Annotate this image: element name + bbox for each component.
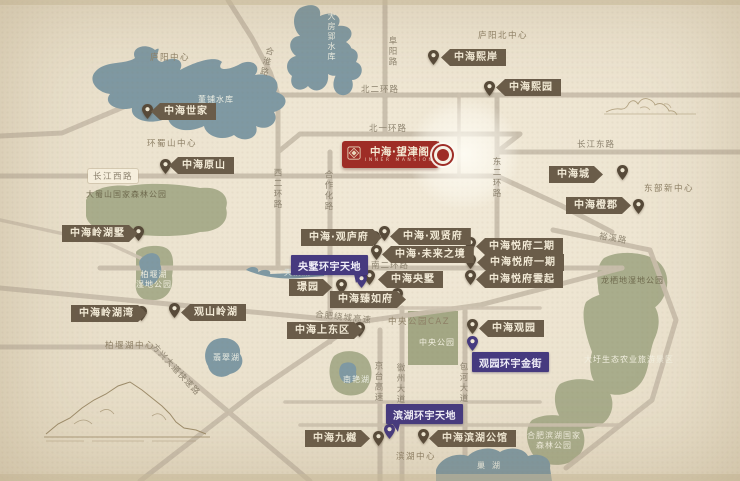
project-pill-cheng[interactable]: 中海城	[549, 166, 603, 183]
district-label-huanshushan: 环蜀山中心	[147, 137, 197, 149]
project-label: 中海世家	[164, 106, 208, 117]
map-canvas: 董铺水库 大房郢水库 天鹅湖 翡翠湖 南艳湖 巢湖 大蜀山国家森林公园 柏堰湖 …	[0, 0, 740, 481]
project-badge-wangjinge[interactable]: 中海·望津阁 INNER MANSION	[342, 141, 439, 168]
project-label: 中海·观贤府	[403, 231, 463, 242]
project-label: 中海橙郡	[574, 200, 618, 211]
pin-jiuyue[interactable]	[373, 431, 384, 446]
road-label-jingtai: 京台高速	[372, 361, 384, 403]
commercial-pill-yangshu-huanyu[interactable]: 央墅环宇天地	[291, 255, 368, 275]
park-label-dashushan: 大蜀山国家森林公园	[86, 190, 167, 200]
pin-guanxianfu[interactable]	[379, 226, 390, 241]
project-label: 中海原山	[182, 160, 226, 171]
project-pill-linghushu[interactable]: 中海岭湖墅	[62, 225, 138, 242]
pin-yuefuyunqi[interactable]	[465, 270, 476, 285]
road-label-fuyanglu: 阜阳路	[386, 36, 398, 68]
park-label-dawei: 大圩生态农业旅游景区	[584, 355, 674, 365]
district-label-luyang: 庐阳中心	[150, 51, 190, 63]
pin-chengjun[interactable]	[633, 199, 644, 214]
project-label: 中海上东区	[295, 325, 350, 336]
badge-subtitle: INNER MANSION	[365, 158, 434, 164]
commercial-label: 观园环宇金街	[479, 359, 542, 370]
project-pill-shijia[interactable]: 中海世家	[151, 103, 216, 120]
project-pill-guanxianfu[interactable]: 中海·观贤府	[390, 228, 471, 245]
pin-guanyuan-huanyu[interactable]	[467, 336, 478, 351]
road-label-xierhuan: 西二环路	[271, 168, 283, 210]
water-label-chaohu: 巢湖	[477, 460, 507, 471]
district-label-caz: 中央公园CAZ	[388, 315, 450, 327]
park-label-binhu-forest: 合肥滨湖国家 森林公园	[527, 431, 581, 451]
project-label: 中海悦府一期	[490, 257, 556, 268]
commercial-label: 滨湖环宇天地	[393, 411, 456, 422]
road-label-changjiangdong: 长江东路	[577, 138, 615, 150]
pin-guanyuan[interactable]	[467, 319, 478, 334]
project-label: 中海央墅	[391, 274, 435, 285]
district-label-luyangbei: 庐阳北中心	[478, 29, 528, 41]
road-label-changjiangxi: 长江西路	[88, 169, 138, 183]
district-label-dongbuxin: 东部新中心	[644, 182, 694, 194]
pin-weilaizhijing[interactable]	[371, 245, 382, 260]
pin-binhugongguan[interactable]	[418, 429, 429, 444]
pin-cheng[interactable]	[617, 165, 628, 180]
project-label: 中海滨湖公馆	[442, 433, 508, 444]
project-pill-weilaizhijing[interactable]: 中海·未来之境	[382, 246, 474, 263]
project-label: 中海观园	[492, 323, 536, 334]
project-label: 中海熙园	[509, 82, 553, 93]
road-label-beierhuan: 北二环路	[361, 83, 399, 95]
mountain-sketch-bottomleft	[44, 382, 210, 441]
pin-xian[interactable]	[428, 50, 439, 65]
commercial-pill-binhu-huanyu[interactable]: 滨湖环宇天地	[386, 404, 463, 424]
project-label: 中海岭湖墅	[70, 228, 125, 239]
project-label: 观山岭湖	[194, 307, 238, 318]
project-label: 中海·观庐府	[309, 232, 369, 243]
park-label-longqidi: 龙栖地湿地公园	[601, 276, 664, 286]
project-pill-zhenrufu[interactable]: 中海臻如府	[330, 291, 406, 308]
zhonghai-logo-icon	[347, 145, 361, 164]
project-label: 中海岭湖湾	[79, 308, 134, 319]
road-label-dongerhuan: 东二环路	[490, 157, 502, 199]
commercial-pill-guanyuan-huanyu[interactable]: 观园环宇金街	[472, 352, 549, 372]
road-label-beiyihuan: 北一环路	[369, 122, 407, 134]
road-label-hezuohualu: 合作化路	[322, 170, 334, 212]
road-label-huizhou: 徽州大道	[394, 363, 406, 405]
project-pill-yangshu[interactable]: 中海央墅	[378, 271, 443, 288]
water-label-feicuihu: 翡翠湖	[213, 352, 240, 363]
project-label: 璟园	[297, 282, 319, 293]
badge-text: 中海·望津阁 INNER MANSION	[365, 146, 434, 164]
project-pill-jiuyue[interactable]: 中海九樾	[305, 430, 370, 447]
project-label: 中海九樾	[313, 433, 357, 444]
project-label: 中海臻如府	[338, 294, 393, 305]
project-pill-guanlufu[interactable]: 中海·观庐府	[301, 229, 382, 246]
pin-yuanshan[interactable]	[160, 159, 171, 174]
pin-guanshanlinghu[interactable]	[169, 303, 180, 318]
project-pill-yuanshan[interactable]: 中海原山	[169, 157, 234, 174]
district-label-baiyanhu: 柏堰湖中心	[105, 339, 155, 351]
mountain-sketch-topright	[604, 99, 696, 115]
water-label-nanyanhu: 南艳湖	[343, 374, 370, 385]
project-label: 中海熙岸	[454, 52, 498, 63]
water-label-dafangying: 大房郢水库	[326, 12, 337, 62]
park-dawei	[584, 292, 659, 395]
project-label: 中海悦府雲起	[489, 274, 555, 285]
project-pill-guanshanlinghu[interactable]: 观山岭湖	[181, 304, 246, 321]
district-label-binhu: 滨湖中心	[396, 450, 436, 462]
road-label-baohe: 包河大道	[457, 362, 469, 404]
project-pill-yuefu1[interactable]: 中海悦府一期	[477, 254, 564, 271]
park-label-central-park: 中央公园	[419, 338, 455, 348]
project-pill-xian[interactable]: 中海熙岸	[441, 49, 506, 66]
project-label: 中海·未来之境	[395, 249, 466, 260]
project-pill-guanyuan[interactable]: 中海观园	[479, 320, 544, 337]
commercial-label: 央墅环宇天地	[298, 262, 361, 273]
project-pill-yuefuyunqi[interactable]: 中海悦府雲起	[476, 271, 563, 288]
project-label: 中海城	[557, 169, 590, 180]
project-pill-shangdongqu[interactable]: 中海上东区	[287, 322, 363, 339]
project-pill-jingyuan[interactable]: 璟园	[289, 279, 332, 296]
park-label-baiyanhu: 柏堰湖 湿地公园	[136, 270, 172, 290]
badge-title: 中海·望津阁	[370, 146, 430, 158]
park-areas	[86, 184, 667, 465]
project-pill-yuefu2[interactable]: 中海悦府二期	[476, 238, 563, 255]
project-pill-xiyuan[interactable]: 中海熙园	[496, 79, 561, 96]
project-pill-chengjun[interactable]: 中海橙郡	[566, 197, 631, 214]
project-pill-linghuwan[interactable]: 中海岭湖湾	[71, 305, 147, 322]
location-target-marker[interactable]	[437, 149, 449, 161]
pin-xiyuan[interactable]	[484, 81, 495, 96]
project-label: 中海悦府二期	[489, 241, 555, 252]
project-pill-binhugongguan[interactable]: 中海滨湖公馆	[429, 430, 516, 447]
